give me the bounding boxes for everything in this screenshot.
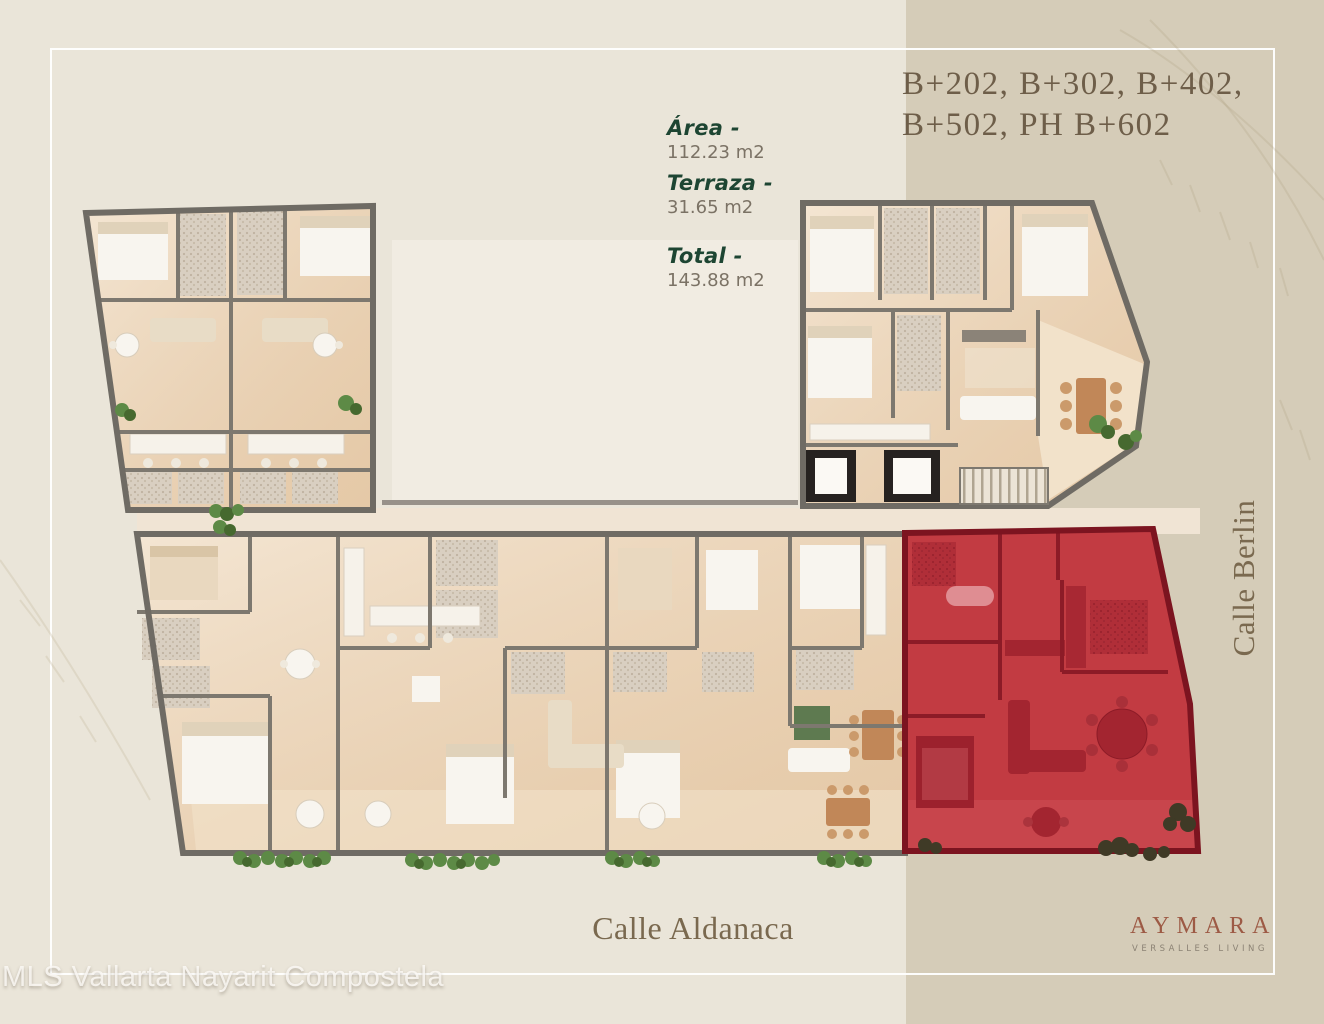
stat-area: Área - 112.23 m2 xyxy=(667,116,827,163)
building-top-left xyxy=(86,206,373,521)
brand-name: AYMARA xyxy=(1130,913,1270,940)
kitchen-counter xyxy=(810,424,930,440)
unit-title: B+202, B+302, B+402, B+502, PH B+602 xyxy=(902,64,1262,146)
unit-highlighted-red xyxy=(905,529,1198,861)
stat-total: Total - 143.88 m2 xyxy=(667,244,827,291)
building-bottom-row xyxy=(137,520,907,853)
total-value: 143.88 m2 xyxy=(667,270,827,291)
brand-logo: AYMARA VERSALLES LIVING xyxy=(1130,913,1270,954)
building-top-right xyxy=(803,203,1147,506)
street-label-calle-aldanaca: Calle Aldanaca xyxy=(583,910,803,947)
area-label: Área - xyxy=(667,116,827,140)
brand-tagline: VERSALLES LIVING xyxy=(1130,944,1270,954)
total-label: Total - xyxy=(667,244,827,268)
area-stats: Área - 112.23 m2 Terraza - 31.65 m2 Tota… xyxy=(667,116,827,299)
terrace-label: Terraza - xyxy=(667,171,827,195)
stat-terrace: Terraza - 31.65 m2 xyxy=(667,171,827,218)
watermark: MLS Vallarta Nayarit Compostela xyxy=(2,961,444,994)
street-label-calle-berlin: Calle Berlin xyxy=(1226,498,1258,658)
area-value: 112.23 m2 xyxy=(667,142,827,163)
unit-title-line2: B+502, PH B+602 xyxy=(902,105,1262,146)
brochure-page: B+202, B+302, B+402, B+502, PH B+602 Áre… xyxy=(0,0,1324,1024)
stairs-icon xyxy=(960,468,1048,504)
terrace-value: 31.65 m2 xyxy=(667,197,827,218)
unit-title-line1: B+202, B+302, B+402, xyxy=(902,64,1262,105)
floorplan xyxy=(0,0,1324,1024)
palm-decoration-left xyxy=(0,560,150,800)
